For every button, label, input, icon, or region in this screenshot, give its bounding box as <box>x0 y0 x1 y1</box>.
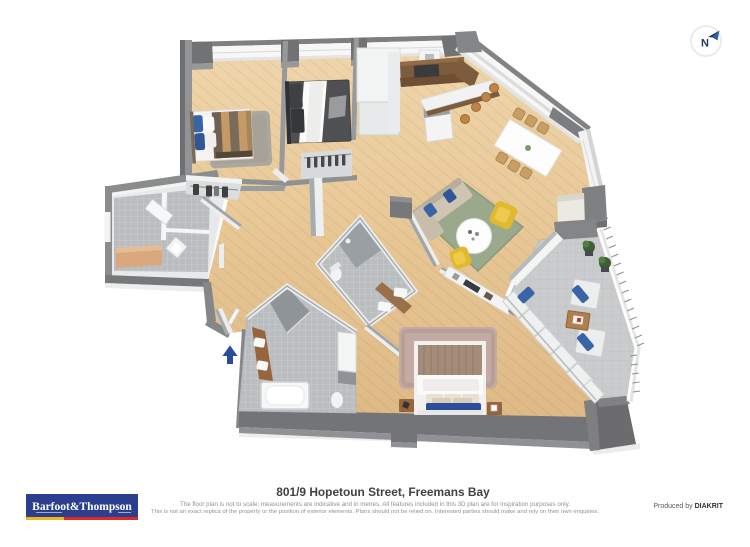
svg-text:Barfoot&Thompson: Barfoot&Thompson <box>32 501 132 513</box>
svg-text:Produced by DIAKRIT: Produced by DIAKRIT <box>653 503 723 510</box>
svg-text:801/9 Hopetoun Street, Freeman: 801/9 Hopetoun Street, Freemans Bay <box>276 485 490 499</box>
svg-text:N: N <box>701 38 709 50</box>
svg-text:The floor plan is not to scale: The floor plan is not to scale; measurem… <box>180 501 570 508</box>
svg-text:This is not an exact replica o: This is not an exact replica of the prop… <box>151 509 599 515</box>
